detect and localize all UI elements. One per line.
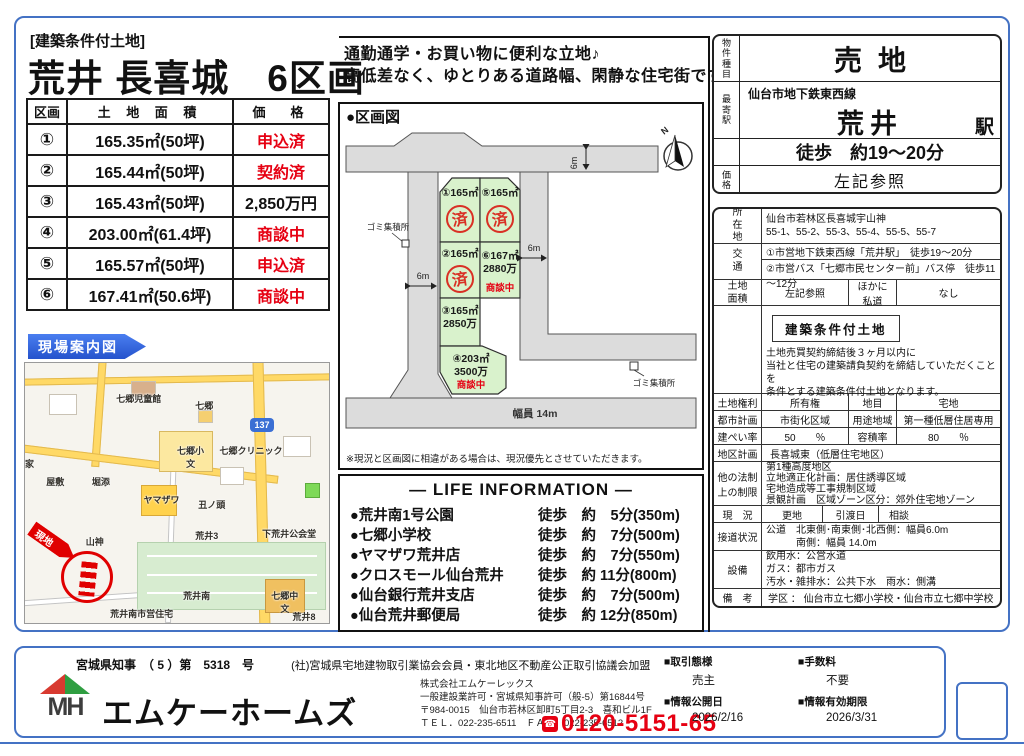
map-label: 荒井南 xyxy=(183,589,210,602)
plot-note: ※現況と区画図に相違がある場合は、現況優先とさせていただきます。 xyxy=(346,451,648,465)
license-number: 宮城県知事 （ 5 ）第 5318 号 xyxy=(76,658,254,672)
table-row: ⑥ 167.41㎡(50.6坪) 商談中 xyxy=(27,279,329,310)
property-type-row: 物件種目 売地 xyxy=(714,36,1000,81)
price-table-header: 区画 土 地 面 積 価 格 xyxy=(27,99,329,124)
publish-date-value: 2026/2/16 xyxy=(664,712,743,724)
city-plan-row: 都市計画 市街化区域 用途地域 第一種低層住居専用 xyxy=(714,410,1000,427)
table-row: ③ 165.43㎡(50坪) 2,850万円 xyxy=(27,186,329,217)
map-label: 荒井8 xyxy=(293,610,316,623)
col-lot: 区画 xyxy=(27,99,67,124)
deal-info-column: ■取引態様 売主 ■情報公開日 2026/2/16 xyxy=(664,654,743,730)
garbage-marker xyxy=(402,240,409,247)
access-label: 交通 xyxy=(732,249,744,274)
land-area-row: 土地面積 左記参照 ほかに私道 なし xyxy=(714,279,1000,305)
dim-bottom-label: 幅員 14m xyxy=(513,407,558,420)
blank-stamp-box xyxy=(956,682,1008,740)
map-label: 七郷クリニック xyxy=(220,444,283,457)
map-label: 丑ノ頭 xyxy=(198,498,225,511)
table-row: ② 165.44㎡(50坪) 契約済 xyxy=(27,155,329,186)
fee-value: 不要 xyxy=(798,672,877,688)
lot3-price: 2850万 xyxy=(443,318,477,330)
map-label: 七郷中 xyxy=(271,589,298,602)
map-label: 荒井3 xyxy=(195,529,218,542)
property-summary-box: 物件種目 売地 最寄駅 仙台市地下鉄東西線 荒井 駅 徒歩 約19～20分 価格… xyxy=(712,34,1002,194)
remarks-row: 備 考 学区 ： 仙台市立七郷小学校・仙台市立七郷中学校 xyxy=(714,588,1000,606)
list-item: ●クロスモール仙台荒井 徒歩 約 11分(800m) xyxy=(340,564,702,584)
property-type-value: 売地 xyxy=(740,36,1000,81)
legal-restrictions-row: 他の法制上の制限 第1種高度地区 立地適正化計画：居住誘導区域 宅地造成等工事規… xyxy=(714,461,1000,505)
location-line2: 55-1、55-2、55-3、55-4、55-5、55-7 xyxy=(766,226,996,239)
price-row: 価格 左記参照 xyxy=(714,165,1000,194)
utilities-row: 設備 飲用水：公営水道 ガス：都市ガス 汚水・雑排水：公共下水 雨水：側溝 xyxy=(714,550,1000,588)
publish-date-label: ■情報公開日 xyxy=(664,694,743,709)
expiry-label: ■情報有効期限 xyxy=(798,694,877,709)
map-street xyxy=(147,555,317,557)
road-top xyxy=(346,133,658,172)
map-street xyxy=(147,574,317,576)
status-badge: 申込済 xyxy=(233,124,329,155)
walk-row: 徒歩 約19～20分 xyxy=(714,138,1000,165)
lot4-price: 3500万 xyxy=(454,366,488,378)
map-label: 山神 xyxy=(86,535,104,548)
lot2-label: ②165㎡ xyxy=(442,247,479,260)
map-label-school-mark: 文 xyxy=(186,457,195,470)
map-label: 七郷 xyxy=(195,399,213,412)
license-line: 宮城県知事 （ 5 ）第 5318 号 (社)宮城県宅地建物取引業協会会員・東北… xyxy=(76,656,650,673)
plot-plan-box: ●区画図 ①165㎡ xyxy=(338,102,704,470)
location-label: 所在地 xyxy=(732,207,744,245)
location-line1: 仙台市若林区長喜城宇山神 xyxy=(766,213,996,226)
private-road-label: ほかに私道 xyxy=(848,280,896,305)
price-reference: 左記参照 xyxy=(740,166,1000,194)
status-badge: 商談中 xyxy=(233,279,329,310)
table-row: ① 165.35㎡(50坪) 申込済 xyxy=(27,124,329,155)
garbage-label: ゴミ集積所 xyxy=(367,222,410,232)
lot3-label: ③165㎡ xyxy=(442,304,479,317)
garbage-marker xyxy=(630,362,638,370)
company-name: 株式会社エムケーレックス xyxy=(420,678,652,691)
table-row: ④ 203.00㎡(61.4坪) 商談中 xyxy=(27,217,329,248)
lot1-label: ①165㎡ xyxy=(442,186,479,199)
location-row: 所在地 仙台市若林区長喜城宇山神 55-1、55-2、55-3、55-4、55-… xyxy=(714,209,1000,243)
site-map: 137 七郷児童館 七郷 七郷小 文 七郷クリニック 屋敷 堀添 ヤマザワ 丑ノ… xyxy=(24,362,330,624)
condition-badge: 建築条件付土地 xyxy=(772,315,900,342)
current-status-row: 現 況 更地 引渡日 相談 xyxy=(714,505,1000,522)
brand-name: エムケーホームズ xyxy=(102,688,357,733)
price-label: 価格 xyxy=(714,166,740,194)
life-information-box: ― LIFE INFORMATION ― ●荒井南1号公園 徒歩 約 5分(35… xyxy=(338,474,704,632)
garbage-pointer xyxy=(392,233,403,242)
district-plan-row: 地区計画 長喜城東（低層住宅地区） xyxy=(714,444,1000,461)
catchphrase-line2: 高低差なく、ゆとりある道路幅、閑静な住宅街です！ xyxy=(344,62,740,86)
station-unit: 駅 xyxy=(975,112,994,139)
page-title: 荒井 長喜城 6区画 xyxy=(28,48,365,102)
map-label: 堀添 xyxy=(92,475,110,488)
station-name: 荒井 xyxy=(740,102,1000,141)
plot-plan-drawing: ①165㎡ 済 ⑤165㎡ 済 ②165㎡ 済 ⑥167㎡ 2880万 商談中 … xyxy=(340,126,702,438)
col-price: 価 格 xyxy=(233,99,329,124)
col-area: 土 地 面 積 xyxy=(67,99,233,124)
permit-line: 一般建設業許可・宮城県知事許可（般-5）第16844号 xyxy=(420,691,652,704)
deal-type-value: 売主 xyxy=(664,672,743,688)
map-label: 下荒井公会堂 xyxy=(262,527,316,540)
station-label: 最寄駅 xyxy=(714,82,740,138)
map-building xyxy=(220,467,244,485)
lot4-status: 商談中 xyxy=(457,379,486,391)
map-label: 荒井南市営住宅 xyxy=(110,607,173,620)
dim-top-label: 6m xyxy=(569,157,579,170)
main-panel: [建築条件付土地] 荒井 長喜城 6区画 区画 土 地 面 積 価 格 ① 16… xyxy=(14,16,1010,632)
list-item: ●仙台荒井郵便局 徒歩 約 12分(850m) xyxy=(340,604,702,624)
divider-vertical xyxy=(708,36,710,632)
map-label-school-mark: 文 xyxy=(280,602,289,615)
access-row: 交通 ①市営地下鉄東西線「荒井駅」 徒歩19～20分 ②市営バス「七郷市民センタ… xyxy=(714,243,1000,279)
flyer-page: [建築条件付土地] 荒井 長喜城 6区画 区画 土 地 面 積 価 格 ① 16… xyxy=(0,0,1024,756)
life-information-title: ― LIFE INFORMATION ― xyxy=(340,480,702,500)
company-footer: 宮城県知事 （ 5 ）第 5318 号 (社)宮城県宅地建物取引業協会会員・東北… xyxy=(14,646,946,738)
lot6-status: 商談中 xyxy=(486,282,515,294)
garbage-label: ゴミ集積所 xyxy=(633,378,676,388)
map-park xyxy=(305,483,320,499)
road-access-row: 接道状況 公道 北東側･南東側･北西側：幅員6.0m 南側：幅員 14.0m xyxy=(714,522,1000,550)
north-label: N xyxy=(659,126,670,137)
condition-row: 建築条件付土地 土地売買契約締結後３ヶ月以内に 当社と住宅の建築請負契約を締結し… xyxy=(714,305,1000,393)
status-badge: 申込済 xyxy=(233,248,329,279)
land-area-value: 左記参照 xyxy=(762,280,848,305)
price-table: 区画 土 地 面 積 価 格 ① 165.35㎡(50坪) 申込済 ② 165.… xyxy=(26,98,330,311)
map-road xyxy=(24,373,330,386)
logo-roof-icon xyxy=(36,674,94,694)
dim-right-label: 6m xyxy=(528,243,541,253)
divider-horizontal xyxy=(339,36,710,38)
sitemap-banner: 現場案内図 xyxy=(28,334,146,359)
map-building xyxy=(283,436,310,457)
map-label: 七郷小 xyxy=(177,444,204,457)
list-item: ●荒井南1号公園 徒歩 約 5分(350m) xyxy=(340,504,702,524)
fee-info-column: ■手数料 不要 ■情報有効期限 2026/3/31 xyxy=(798,654,877,730)
property-type-label: 物件種目 xyxy=(714,36,740,81)
rights-row: 土地権利 所有権 地目 宅地 xyxy=(714,393,1000,410)
lot5-label: ⑤165㎡ xyxy=(482,186,519,199)
company-logo: MH xyxy=(36,674,94,730)
membership-text: (社)宮城県宅地建物取引業協会会員・東北地区不動産公正取引協議会加盟 xyxy=(291,660,650,672)
walk-time: 徒歩 約19～20分 xyxy=(740,139,1000,165)
lot4-label: ④203㎡ xyxy=(453,352,490,365)
price-value: 2,850万円 xyxy=(233,186,329,217)
logo-letters: MH xyxy=(36,694,94,722)
garbage-pointer xyxy=(634,370,644,376)
site-location-marker xyxy=(61,551,113,603)
map-building xyxy=(49,394,76,415)
table-row: ⑤ 165.57㎡(50坪) 申込済 xyxy=(27,248,329,279)
rail-line-name: 仙台市地下鉄東西線 xyxy=(748,85,856,102)
site-lots-mark xyxy=(78,561,97,596)
station-row: 最寄駅 仙台市地下鉄東西線 荒井 駅 xyxy=(714,81,1000,138)
catchphrase-line1: 通勤通学・お買い物に便利な立地♪ xyxy=(344,40,600,64)
fee-label: ■手数料 xyxy=(798,654,877,669)
list-item: ●七郷小学校 徒歩 約 7分(500m) xyxy=(340,524,702,544)
map-label: 七郷児童館 xyxy=(116,392,161,405)
status-badge: 契約済 xyxy=(233,155,329,186)
bottom-rule xyxy=(0,742,1024,744)
property-details-box: 所在地 仙台市若林区長喜城宇山神 55-1、55-2、55-3、55-4、55-… xyxy=(712,207,1002,608)
status-badge: 商談中 xyxy=(233,217,329,248)
list-item: ●仙台銀行荒井支店 徒歩 約 7分(500m) xyxy=(340,584,702,604)
private-road-value: なし xyxy=(896,280,1000,305)
map-label: ヤマザワ xyxy=(144,493,180,506)
access-line1: ①市営地下鉄東西線「荒井駅」 徒歩19～20分 xyxy=(762,244,1000,259)
map-label: 家 xyxy=(25,457,34,470)
dim-left-label: 6m xyxy=(417,271,430,281)
plot-plan-title: ●区画図 xyxy=(346,106,400,127)
freedial-icon: ☎ xyxy=(542,716,558,732)
map-label: 屋敷 xyxy=(46,475,64,488)
coverage-row: 建ぺい率 50 ％ 容積率 80 ％ xyxy=(714,427,1000,444)
lot6-label: ⑥167㎡ xyxy=(482,249,519,262)
expiry-value: 2026/3/31 xyxy=(798,712,877,724)
deal-type-label: ■取引態様 xyxy=(664,654,743,669)
lot6-price: 2880万 xyxy=(483,263,517,275)
route-shield: 137 xyxy=(250,418,274,432)
list-item: ●ヤマザワ荒井店 徒歩 約 7分(550m) xyxy=(340,544,702,564)
land-area-label: 土地面積 xyxy=(726,280,750,306)
road-right xyxy=(520,172,696,360)
